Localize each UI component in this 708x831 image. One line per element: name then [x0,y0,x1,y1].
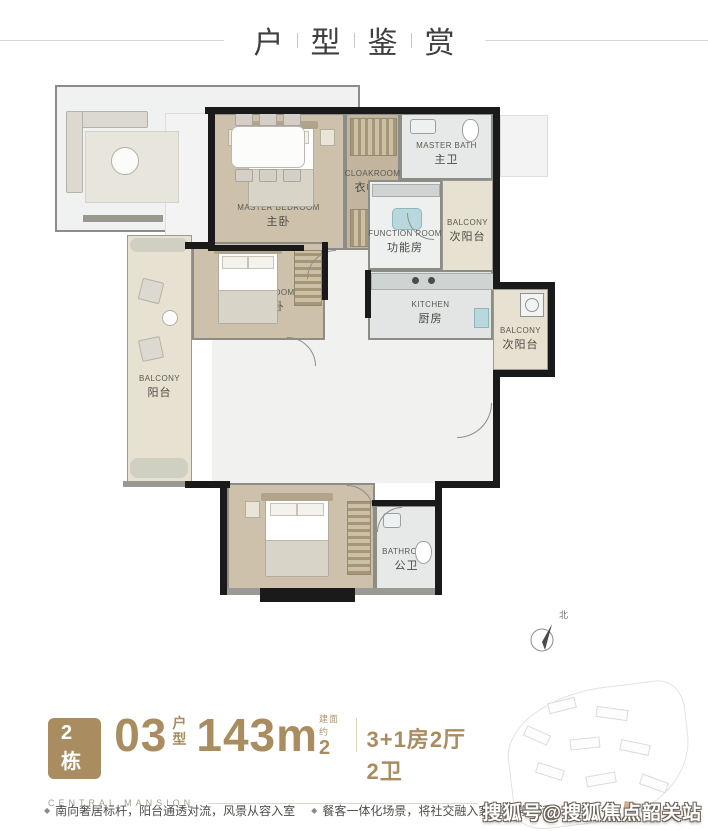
dining-chair-icon [259,113,277,126]
sink-icon [474,308,489,328]
exterior-bay [500,115,548,177]
wall [435,481,442,595]
room-label-zh: 阳台 [148,384,172,400]
unit-type-label: 户型 [172,715,186,747]
side-table-icon [162,310,178,326]
room-kitchen: KITCHEN 厨房 [368,270,493,340]
washer-icon [520,293,544,317]
title-separator [411,33,412,48]
nightstand-icon [320,129,335,146]
dining-chair-icon [235,113,253,126]
desk-icon [372,184,440,197]
wall [493,370,500,488]
title-separator [354,33,355,48]
room-label-zh: 次阳台 [503,336,539,352]
wall [372,500,440,506]
room-label-zh: 次阳台 [450,228,486,244]
wall [205,107,500,114]
room-label-en: BALCONY [447,218,488,227]
bed-icon [265,499,329,577]
tv-cabinet-icon [83,215,163,222]
dining-chair-icon [283,169,301,182]
room-label-en: BALCONY [139,374,180,383]
room-balcony-top: BALCONY 次阳台 [442,180,493,282]
room-bedroom-mid: BEDROOM 次卧 [192,242,325,340]
area-superscript: 2 [319,738,330,758]
sink-icon [410,119,436,134]
page-title: 户 型 鉴 赏 [0,18,708,62]
title-char: 户 [254,18,284,62]
wall [493,282,555,289]
dining-chair-icon [259,169,277,182]
wall [548,282,555,377]
stove-burner-icon [428,277,435,284]
title-rule-right [485,40,708,41]
poster-root: 户 型 鉴 赏 MASTER BEDROOM 主卧 CLO [0,0,708,831]
room-label-zh: 厨房 [419,310,443,326]
wall [123,481,192,487]
bed-icon [218,252,278,324]
room-label-zh: 主卧 [267,213,291,229]
wall [322,242,328,300]
wall [493,370,555,377]
wall [185,481,230,488]
watermark: 搜狐号@搜狐焦点韶关站 [482,798,702,825]
title-separator [297,33,298,48]
wardrobe-icon [350,118,397,156]
dining-chair-icon [283,113,301,126]
info-divider [356,718,357,752]
dining-chair-icon [235,169,253,182]
nightstand-icon [245,501,260,518]
title-char: 赏 [425,18,455,62]
title-char: 鉴 [368,18,398,62]
toilet-icon [462,119,479,142]
room-label-en: KITCHEN [412,300,450,309]
plant-icon [130,458,188,478]
compass: 北 [528,608,568,654]
compass-north-label: 北 [559,608,568,621]
lounge-chair-icon [138,336,164,362]
lounge-chair-icon [138,278,165,305]
feature-text: 南向奢居标杆，阳台通透对流，风景从容入室 [55,802,295,819]
wall [493,107,500,289]
dining-table-icon [231,126,305,168]
wall [260,588,355,602]
room-label-en: MASTER BATH [416,141,477,150]
unit-number: 03 [114,712,167,758]
room-label-zh: 主卫 [435,151,459,167]
room-label-zh: 功能房 [387,239,423,255]
building-badge: 2栋 [48,718,101,779]
diamond-bullet-icon: ◆ [44,806,50,815]
wall [208,245,304,251]
coffee-table-icon [111,147,139,175]
stove-burner-icon [412,277,419,284]
diamond-bullet-icon: ◆ [311,806,317,815]
toilet-icon [415,541,432,564]
wall [435,481,500,488]
title-char: 型 [311,18,341,62]
compass-icon [528,622,558,654]
wall [365,270,371,318]
unit-info: 2栋 03 户型 143m 建面约 2 3+1房2厅2卫 CENTRAL MAN… [48,712,478,808]
room-balcony-left: BALCONY 阳台 [127,235,192,483]
feature-item: ◆ 南向奢居标杆，阳台通透对流，风景从容入室 [44,802,295,819]
wardrobe-icon [347,501,371,575]
floor-plan: MASTER BEDROOM 主卧 CLOAKROOM 衣帽间 MASTER B… [55,85,615,685]
wall [208,107,215,249]
feature-list: ◆ 南向奢居标杆，阳台通透对流，风景从容入室 ◆ 餐客一体化场景，将社交融入家庭… [44,802,504,819]
plant-icon [130,238,188,252]
area-note: 建面约 [319,712,344,738]
room-label-en: BALCONY [500,326,541,335]
title-rule-left [0,40,224,41]
room-label-en: CLOAKROOM [345,169,401,178]
room-label-zh: 公卫 [395,557,419,573]
room-balcony-right: BALCONY 次阳台 [493,289,548,370]
layout-config: 3+1房2厅2卫 [367,722,479,786]
sofa-icon [66,111,83,193]
wall [220,481,227,595]
area-value: 143m [196,712,318,758]
room-master-bath: MASTER BATH 主卫 [400,113,493,180]
